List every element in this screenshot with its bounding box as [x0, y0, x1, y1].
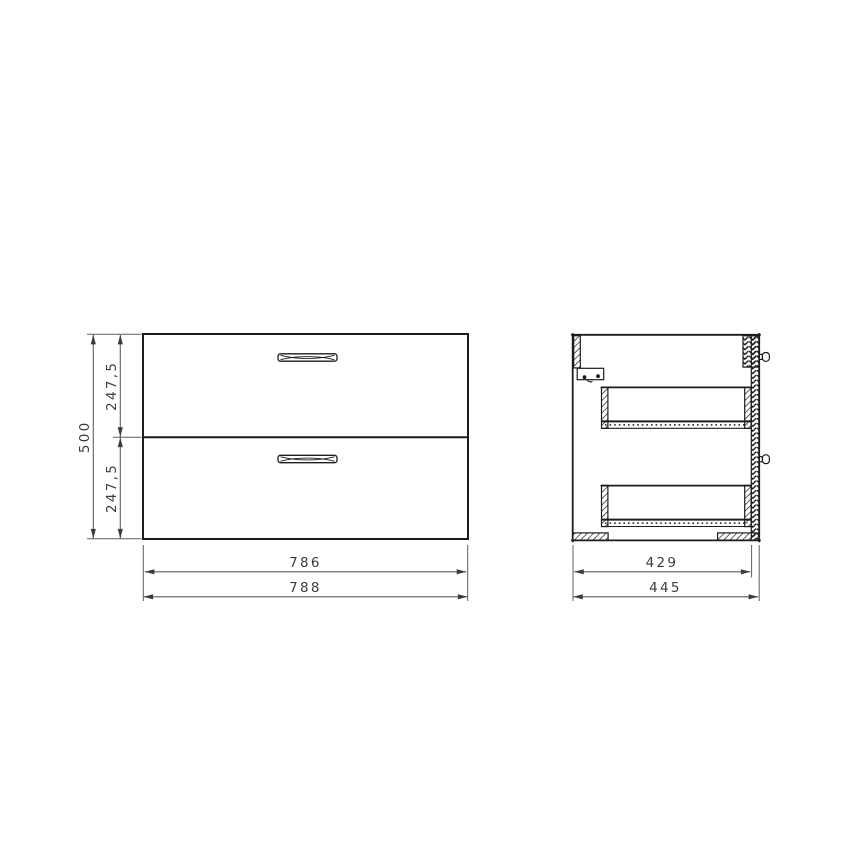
dim-text-upper-drawer-height: 247,5	[104, 361, 120, 411]
upper-drawer-handle	[278, 354, 337, 361]
fitting-head	[762, 353, 769, 362]
wall-mount-fitting-upper	[759, 353, 769, 362]
dim-text-drawer-front-width: 786	[289, 555, 322, 571]
bracket-body	[577, 368, 604, 379]
side-view-dimensions: 429 445	[573, 545, 759, 601]
bottom-panel-front-section	[573, 533, 608, 540]
back-panel-section	[751, 336, 759, 541]
handle-outline	[278, 354, 337, 361]
upper-drawer-section	[602, 387, 752, 428]
wall-mount-fitting-lower	[759, 455, 769, 464]
drawer-slide-bracket	[577, 368, 604, 382]
side-view	[572, 334, 769, 541]
bottom-panel-back-section	[718, 533, 760, 540]
lower-drawer-handle	[278, 455, 337, 462]
front-view	[143, 334, 468, 539]
bracket-rivet-left	[583, 375, 587, 379]
dim-text-total-depth: 445	[649, 580, 682, 596]
dim-text-total-height: 500	[77, 420, 93, 453]
dim-text-inner-depth: 429	[646, 555, 679, 571]
bracket-rivet-right	[596, 374, 600, 378]
side-carcass-outline	[572, 334, 760, 541]
lower-drawer-section	[602, 485, 752, 526]
technical-drawing-canvas: 500 247,5 247,5 786 788	[0, 0, 868, 868]
dim-text-lower-drawer-height: 247,5	[104, 463, 120, 513]
front-panel-section	[574, 336, 581, 368]
dim-text-total-width: 788	[289, 580, 322, 596]
